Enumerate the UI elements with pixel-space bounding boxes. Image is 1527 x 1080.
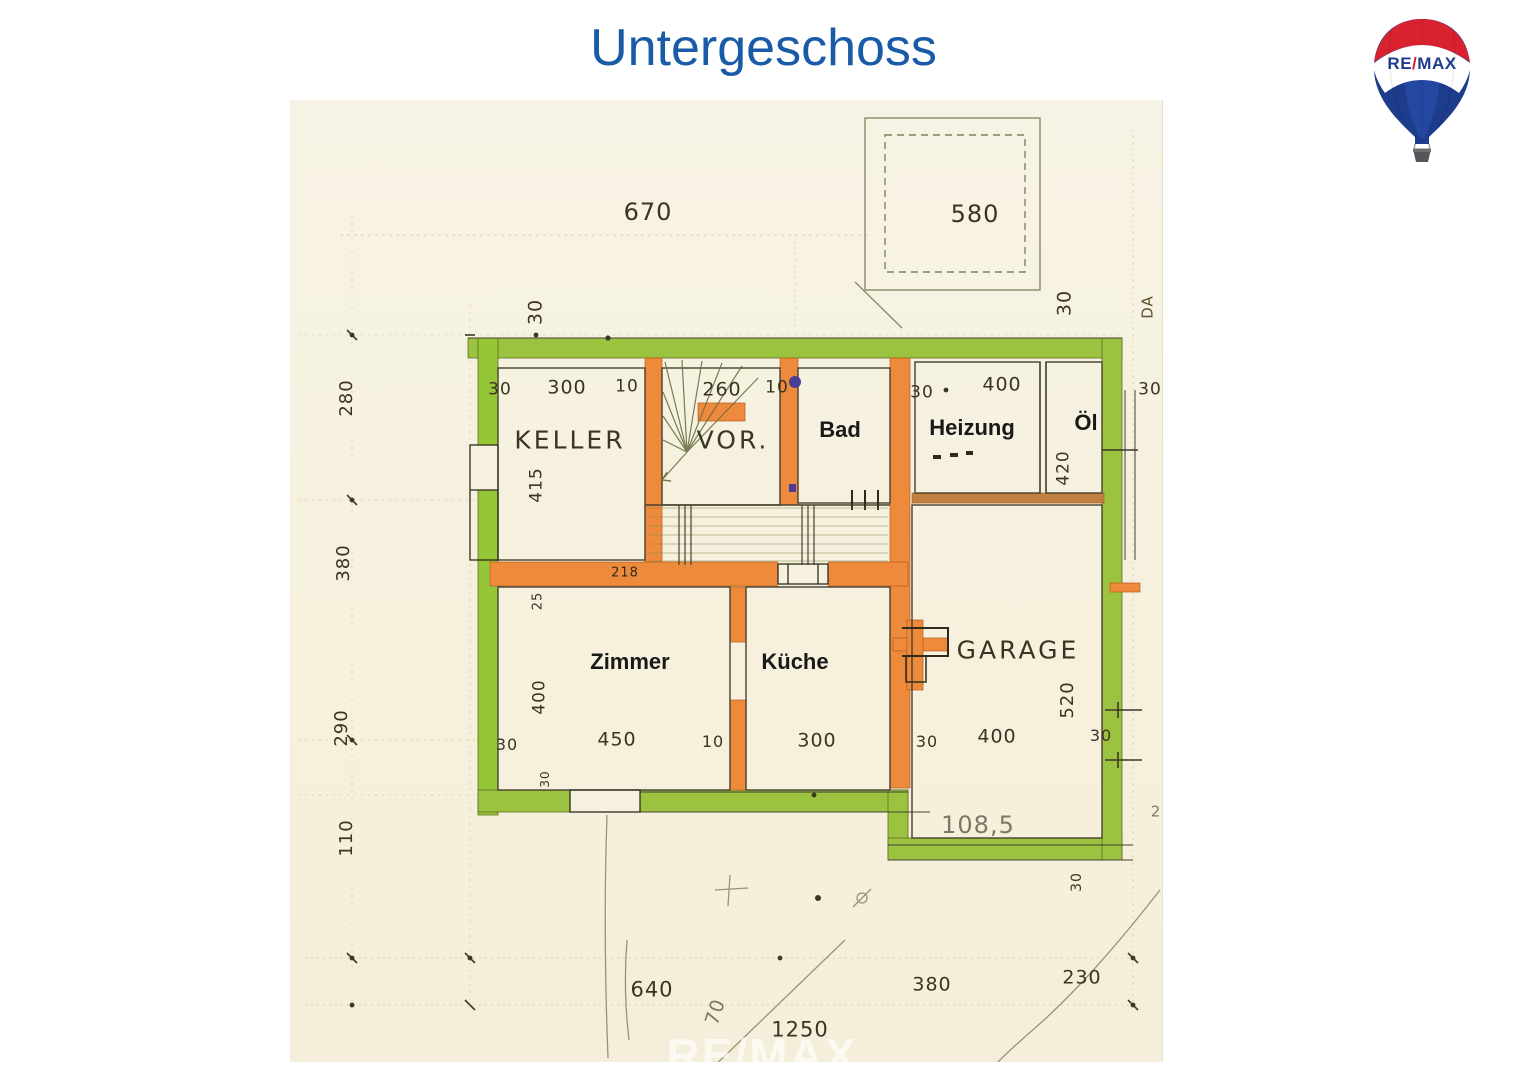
room-label-heizung: Heizung: [929, 417, 1015, 439]
dim-oel-depth: 420: [1056, 450, 1073, 485]
dim-garage-width: 400: [977, 728, 1016, 747]
dim-left-380: 380: [335, 544, 353, 581]
wall-keller-vor: [645, 358, 662, 562]
dim-30-zimmer-left: 30: [496, 737, 518, 753]
wall-garage-top-thin: [912, 493, 1104, 503]
wall-zimmer-kueche-upper: [730, 587, 746, 642]
dim-10-b: 10: [765, 380, 789, 397]
dim-30-garage-bottom: 30: [1070, 872, 1084, 892]
room-label-zimmer: Zimmer: [590, 651, 669, 673]
wall-mid-horizontal: [490, 562, 908, 586]
dim-30-keller: 30: [488, 382, 512, 399]
dim-wall-218: 218: [611, 567, 639, 580]
room-label-kueche: Küche: [761, 651, 828, 673]
dim-left-280: 280: [338, 379, 356, 416]
dim-heizung-width: 400: [982, 376, 1021, 395]
wall-bottom-house: [478, 790, 908, 812]
dim-garage-depth: 520: [1059, 681, 1077, 718]
stairs-corridor-hatch: [650, 508, 888, 561]
room-outlines: [468, 338, 1135, 860]
kueche-outline: [746, 587, 890, 790]
dim-bottom-230: 230: [1062, 969, 1101, 988]
dim-left-290: 290: [333, 709, 351, 746]
garage-outline: [912, 505, 1102, 838]
remax-balloon-logo-icon: RE/MAX: [1366, 16, 1478, 168]
dim-sill-25: 25: [532, 592, 545, 611]
page: Untergeschoss RE/MAX: [0, 0, 1527, 1080]
dim-left-110: 110: [338, 819, 356, 856]
wall-bottom-garage: [888, 838, 1122, 860]
dim-10-a: 10: [615, 379, 639, 396]
dim-annex-square: 580: [951, 202, 1000, 226]
dim-30-heizung: 30: [910, 385, 934, 402]
remax-logotype: RE/MAX: [1387, 54, 1456, 73]
wall-zimmer-kueche-lower: [730, 700, 746, 790]
room-label-keller: KELLER: [514, 428, 625, 453]
note-da: DA: [1141, 295, 1156, 319]
dim-garage-area: 108,5: [941, 813, 1015, 837]
wall-top: [468, 338, 1122, 358]
room-label-bad: Bad: [819, 419, 861, 441]
right-wall-orange-mark: [1110, 583, 1140, 592]
wall-window-gaps: [476, 445, 640, 814]
dim-wall30-topright: 30: [1056, 290, 1075, 316]
annex-square: [855, 118, 1040, 328]
dim-zimmer-depth: 400: [532, 679, 549, 714]
dim-keller-width: 300: [547, 379, 586, 398]
dim-bottom-640: 640: [630, 980, 673, 1001]
wall-right: [1102, 338, 1122, 860]
dim-plot-top: 670: [624, 200, 673, 224]
floorplan-scan: 670 580 30 30 DA 30 300 10 260 10 30 400…: [290, 100, 1163, 1062]
room-label-vor: VOR.: [697, 428, 770, 453]
dim-10-c: 10: [702, 734, 724, 750]
dim-30-right-edge: 30: [1138, 382, 1162, 399]
dim-30-small: 30: [539, 770, 551, 787]
dim-30-garage-right: 30: [1090, 728, 1112, 744]
dim-30-kueche-right: 30: [916, 734, 938, 750]
room-label-oel: Öl: [1074, 412, 1097, 434]
dim-zimmer-width: 450: [597, 731, 636, 750]
dim-wall30-topleft: 30: [527, 299, 546, 325]
page-title: Untergeschoss: [0, 18, 1527, 78]
floorplan-drawing: [290, 100, 1162, 1062]
dim-kueche-width: 300: [797, 732, 836, 751]
balloon-basket: [1413, 144, 1431, 162]
dim-edge-2: 2: [1151, 805, 1162, 820]
dim-keller-depth: 415: [529, 467, 546, 502]
dim-bottom-380: 380: [912, 976, 951, 995]
dim-stair-width: 260: [702, 381, 741, 400]
room-label-garage: GARAGE: [957, 638, 1080, 663]
